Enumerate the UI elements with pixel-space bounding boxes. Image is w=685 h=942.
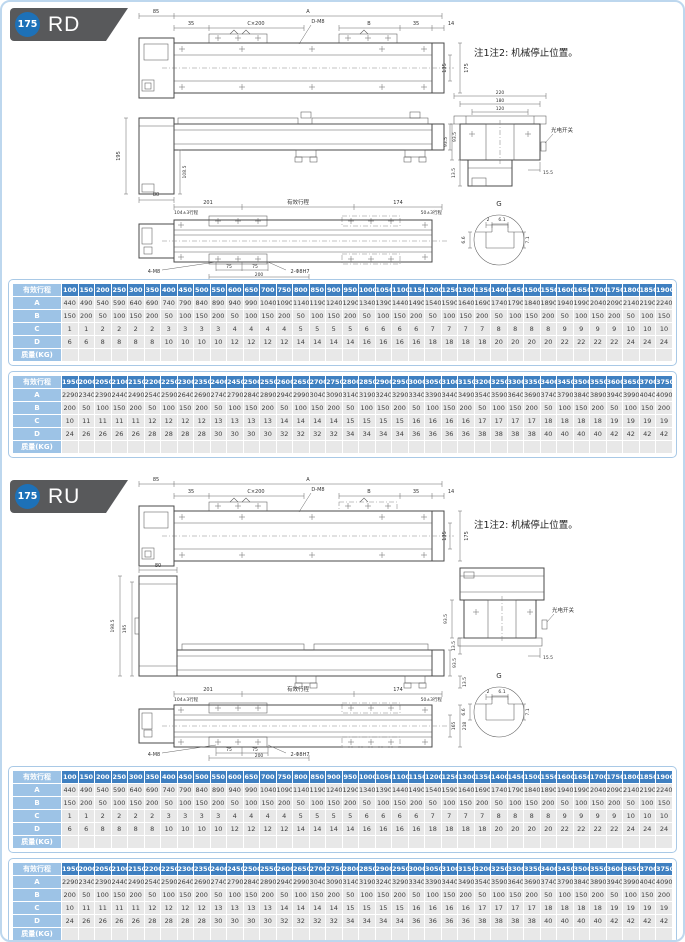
data-cell [392, 928, 409, 941]
dim-label: 85 [153, 9, 159, 15]
dim-label: 4-M8 [148, 269, 160, 275]
data-cell: 840 [194, 784, 211, 797]
data-cell: 4 [243, 810, 260, 823]
dim-label: 15.5 [543, 655, 553, 661]
stroke-value: 2300 [177, 863, 194, 876]
data-cell: 40 [557, 428, 574, 441]
dim-label: 104±3行程 [174, 696, 199, 703]
data-cell: 3 [194, 810, 211, 823]
ru-g-detail: G 2 6.1 7.1 6.6 [461, 672, 531, 737]
data-cell: 7 [474, 323, 491, 336]
data-cell: 30 [210, 428, 227, 441]
data-cell: 10 [177, 336, 194, 349]
data-cell: 24 [656, 336, 673, 349]
data-cell: 13 [260, 415, 277, 428]
data-cell: 1590 [441, 784, 458, 797]
data-cell: 17 [474, 902, 491, 915]
data-cell: 30 [260, 428, 277, 441]
data-cell: 1390 [375, 784, 392, 797]
data-cell: 16 [359, 823, 376, 836]
data-cell [507, 928, 524, 941]
data-cell: 14 [326, 823, 343, 836]
data-cell [276, 836, 293, 849]
data-cell: 18 [590, 902, 607, 915]
data-cell: 100 [557, 889, 574, 902]
data-cell [111, 349, 128, 362]
data-cell: 150 [524, 797, 541, 810]
data-cell [326, 349, 343, 362]
rd-g-detail: G 2 6.1 7.1 6.6 [461, 200, 531, 265]
data-cell [260, 441, 277, 454]
data-cell: 17 [491, 415, 508, 428]
stroke-value: 2150 [128, 376, 145, 389]
stroke-value: 2400 [210, 863, 227, 876]
data-cell [326, 928, 343, 941]
data-cell: 40 [573, 915, 590, 928]
data-cell: 8 [524, 323, 541, 336]
data-cell: 34 [375, 428, 392, 441]
data-cell [639, 928, 656, 941]
stroke-value: 2200 [144, 376, 161, 389]
data-cell: 26 [95, 428, 112, 441]
dim-label: 85 [153, 477, 159, 483]
data-cell: 1 [62, 323, 79, 336]
data-cell [161, 836, 178, 849]
data-cell: 2740 [210, 389, 227, 402]
data-cell [458, 836, 475, 849]
data-cell: 100 [309, 797, 326, 810]
stroke-value: 1700 [590, 284, 607, 297]
rd-stroke-table-2: 有效行程195020002050210021502200225023002350… [8, 371, 677, 458]
row-label: D [13, 428, 62, 441]
data-cell: 14 [326, 415, 343, 428]
data-cell: 2590 [161, 389, 178, 402]
data-cell: 100 [227, 402, 244, 415]
data-cell: 42 [639, 428, 656, 441]
data-cell: 150 [573, 402, 590, 415]
data-cell: 11 [78, 902, 95, 915]
data-cell: 50 [144, 402, 161, 415]
data-cell: 50 [210, 402, 227, 415]
data-cell [606, 349, 623, 362]
data-cell [243, 349, 260, 362]
data-cell: 15 [375, 902, 392, 915]
data-cell [441, 349, 458, 362]
data-cell: 38 [507, 428, 524, 441]
data-cell [590, 836, 607, 849]
data-cell: 10 [62, 415, 79, 428]
dim-label: 有效行程 [287, 685, 310, 693]
data-cell: 28 [144, 915, 161, 928]
data-cell: 100 [359, 889, 376, 902]
data-cell: 1140 [293, 297, 310, 310]
data-cell: 5 [309, 810, 326, 823]
data-cell: 1140 [293, 784, 310, 797]
data-cell: 200 [656, 402, 673, 415]
data-cell: 50 [144, 889, 161, 902]
data-cell: 34 [359, 915, 376, 928]
dim-label: 13.5 [451, 168, 457, 178]
stroke-value: 700 [260, 284, 277, 297]
data-cell: 2440 [111, 876, 128, 889]
stroke-value: 2100 [111, 863, 128, 876]
dim-label: 108.5 [182, 165, 188, 178]
data-cell: 200 [458, 889, 475, 902]
data-cell [309, 349, 326, 362]
data-cell: 4 [276, 810, 293, 823]
data-cell: 32 [309, 428, 326, 441]
stroke-value: 250 [111, 284, 128, 297]
data-cell: 22 [557, 823, 574, 836]
stroke-value: 3300 [507, 863, 524, 876]
data-cell: 2290 [62, 389, 79, 402]
data-cell: 9 [573, 810, 590, 823]
data-cell: 200 [474, 797, 491, 810]
data-cell: 1340 [359, 297, 376, 310]
stroke-value: 900 [326, 284, 343, 297]
data-cell: 16 [408, 415, 425, 428]
stroke-value: 2950 [392, 376, 409, 389]
data-cell: 32 [326, 915, 343, 928]
data-cell [95, 349, 112, 362]
data-cell: 3090 [326, 389, 343, 402]
data-cell: 1090 [276, 297, 293, 310]
data-cell [392, 349, 409, 362]
data-cell [540, 836, 557, 849]
data-cell [425, 836, 442, 849]
stroke-value: 900 [326, 771, 343, 784]
stroke-value: 500 [194, 284, 211, 297]
data-cell: 2940 [276, 389, 293, 402]
data-cell: 100 [441, 310, 458, 323]
data-cell: 150 [656, 797, 673, 810]
data-cell: 18 [573, 415, 590, 428]
data-cell: 640 [128, 784, 145, 797]
data-cell: 3540 [474, 876, 491, 889]
stroke-value: 1050 [375, 771, 392, 784]
row-label: C [13, 323, 62, 336]
data-cell: 1540 [425, 297, 442, 310]
dim-label: 93.5 [452, 658, 458, 668]
data-cell: 13 [227, 415, 244, 428]
data-cell [144, 928, 161, 941]
data-cell [573, 928, 590, 941]
data-cell: 100 [639, 797, 656, 810]
data-cell: 34 [342, 915, 359, 928]
data-cell [293, 928, 310, 941]
stroke-value: 1650 [573, 284, 590, 297]
data-cell: 8 [524, 810, 541, 823]
data-cell [342, 441, 359, 454]
data-cell: 34 [392, 428, 409, 441]
data-cell [78, 349, 95, 362]
data-cell: 4040 [639, 876, 656, 889]
data-cell [606, 836, 623, 849]
dim-label: B [367, 21, 371, 27]
data-cell [474, 349, 491, 362]
data-cell: 200 [78, 797, 95, 810]
stroke-value: 2450 [227, 376, 244, 389]
data-cell: 150 [260, 797, 277, 810]
data-cell: 8 [128, 336, 145, 349]
data-cell: 1990 [573, 784, 590, 797]
data-cell: 3240 [375, 876, 392, 889]
stroke-value: 2000 [78, 863, 95, 876]
data-cell: 28 [161, 915, 178, 928]
stroke-value: 1850 [639, 771, 656, 784]
data-cell: 50 [540, 402, 557, 415]
rd-end-view: 220 180 120 光电开关 15.5 93.5 13.5 [443, 90, 574, 186]
data-cell: 42 [656, 915, 673, 928]
data-cell: 150 [243, 889, 260, 902]
ru-top-view: 85 A 35 C×200 B 35 14 D-M8 135 175 [139, 477, 470, 566]
data-cell: 200 [590, 402, 607, 415]
stroke-value: 1350 [474, 284, 491, 297]
data-cell: 26 [128, 915, 145, 928]
data-cell [639, 349, 656, 362]
data-cell: 42 [639, 915, 656, 928]
data-cell: 19 [623, 415, 640, 428]
data-cell: 34 [342, 428, 359, 441]
row-label: B [13, 889, 62, 902]
data-cell: 28 [194, 915, 211, 928]
stroke-value: 2600 [276, 376, 293, 389]
data-cell: 12 [161, 415, 178, 428]
data-cell: 2890 [260, 389, 277, 402]
data-cell: 1440 [392, 297, 409, 310]
data-cell: 17 [524, 902, 541, 915]
data-cell: 1840 [524, 297, 541, 310]
data-cell [375, 836, 392, 849]
data-cell: 26 [128, 428, 145, 441]
data-cell: 3 [194, 323, 211, 336]
data-cell: 12 [243, 823, 260, 836]
data-cell [177, 836, 194, 849]
detail-label: G [496, 200, 501, 208]
data-cell: 8 [491, 323, 508, 336]
data-cell: 1440 [392, 784, 409, 797]
stroke-header-label: 有效行程 [13, 863, 62, 876]
stroke-value: 3200 [474, 376, 491, 389]
dim-label: 174 [393, 687, 403, 693]
data-cell: 150 [375, 889, 392, 902]
dim-label: 198.5 [110, 619, 116, 632]
data-cell: 3740 [540, 389, 557, 402]
data-cell: 16 [458, 415, 475, 428]
data-cell: 1940 [557, 784, 574, 797]
dim-label: 13.5 [451, 641, 457, 651]
data-cell: 20 [491, 823, 508, 836]
data-cell: 6 [359, 810, 376, 823]
stroke-value: 2750 [326, 376, 343, 389]
data-cell [540, 928, 557, 941]
stroke-value: 3200 [474, 863, 491, 876]
data-cell: 16 [441, 415, 458, 428]
data-cell [293, 349, 310, 362]
data-cell: 40 [590, 915, 607, 928]
data-cell: 24 [623, 336, 640, 349]
rd-bottom-view: 201 有效行程 174 104±3行程 50±3行程 4-M8 75 75 2 [139, 198, 447, 279]
data-cell: 200 [144, 310, 161, 323]
data-cell: 34 [392, 915, 409, 928]
dim-label: 14 [448, 489, 454, 495]
data-cell [639, 836, 656, 849]
data-cell [590, 349, 607, 362]
stroke-table: 有效行程195020002050210021502200225023002350… [12, 375, 673, 454]
data-cell: 15 [342, 902, 359, 915]
data-cell [524, 928, 541, 941]
stroke-value: 3600 [606, 863, 623, 876]
data-cell: 100 [95, 402, 112, 415]
stroke-value: 850 [309, 771, 326, 784]
stroke-value: 1950 [62, 376, 79, 389]
data-cell: 24 [639, 823, 656, 836]
data-cell: 16 [408, 336, 425, 349]
data-cell: 1640 [458, 784, 475, 797]
data-cell [144, 441, 161, 454]
data-cell [260, 928, 277, 941]
data-cell: 3290 [392, 389, 409, 402]
data-cell: 2940 [276, 876, 293, 889]
ru-stroke-table-2: 有效行程195020002050210021502200225023002350… [8, 858, 677, 942]
stroke-value: 3050 [425, 863, 442, 876]
stroke-value: 700 [260, 771, 277, 784]
data-cell: 4040 [639, 389, 656, 402]
data-cell: 36 [425, 428, 442, 441]
dim-label: 75 [226, 264, 232, 270]
data-cell: 200 [210, 310, 227, 323]
data-cell: 18 [458, 336, 475, 349]
stroke-value: 2350 [194, 376, 211, 389]
data-cell: 38 [491, 915, 508, 928]
data-cell: 4 [260, 323, 277, 336]
stroke-value: 550 [210, 284, 227, 297]
data-cell: 50 [78, 889, 95, 902]
data-cell: 7 [441, 323, 458, 336]
data-cell: 50 [557, 797, 574, 810]
data-cell: 200 [78, 310, 95, 323]
data-cell: 16 [392, 823, 409, 836]
data-cell: 1190 [309, 297, 326, 310]
dim-label: 15.5 [543, 170, 553, 176]
data-cell: 38 [524, 428, 541, 441]
data-cell: 200 [276, 797, 293, 810]
stroke-value: 2500 [243, 863, 260, 876]
data-cell: 36 [408, 428, 425, 441]
stroke-header-label: 有效行程 [13, 376, 62, 389]
dim-label: 6.6 [461, 708, 467, 715]
data-cell: 100 [507, 310, 524, 323]
data-cell: 22 [573, 336, 590, 349]
dim-label: 195 [122, 625, 128, 634]
data-cell: 2840 [243, 389, 260, 402]
data-cell [128, 836, 145, 849]
row-label: D [13, 915, 62, 928]
data-cell: 150 [458, 797, 475, 810]
data-cell: 3840 [573, 876, 590, 889]
data-cell [227, 836, 244, 849]
data-cell: 10 [639, 323, 656, 336]
stroke-value: 650 [243, 771, 260, 784]
data-cell [392, 441, 409, 454]
data-cell: 18 [441, 336, 458, 349]
stroke-value: 150 [78, 284, 95, 297]
data-cell: 1390 [375, 297, 392, 310]
data-cell: 20 [507, 823, 524, 836]
row-label: B [13, 797, 62, 810]
data-cell: 13 [260, 902, 277, 915]
data-cell [491, 441, 508, 454]
data-cell: 32 [276, 915, 293, 928]
data-cell [375, 349, 392, 362]
stroke-value: 3450 [557, 863, 574, 876]
stroke-value: 2250 [161, 376, 178, 389]
stroke-value: 2350 [194, 863, 211, 876]
data-cell: 6 [375, 323, 392, 336]
data-cell: 50 [474, 402, 491, 415]
data-cell: 11 [111, 902, 128, 915]
photo-switch-label: 光电开关 [552, 606, 575, 614]
stroke-value: 3550 [590, 863, 607, 876]
data-cell [161, 928, 178, 941]
data-cell: 3590 [491, 876, 508, 889]
dim-label: 135 [442, 531, 448, 541]
data-cell: 7 [441, 810, 458, 823]
data-cell: 150 [639, 402, 656, 415]
data-cell: 22 [606, 823, 623, 836]
ru-technical-drawing: 85 A 35 C×200 B 35 14 D-M8 135 175 [2, 472, 685, 764]
data-cell: 50 [408, 402, 425, 415]
data-cell: 6 [359, 323, 376, 336]
data-cell: 50 [359, 310, 376, 323]
stroke-value: 100 [62, 284, 79, 297]
data-cell: 10 [194, 823, 211, 836]
data-cell [573, 836, 590, 849]
data-cell [128, 441, 145, 454]
dim-label: 201 [203, 687, 213, 693]
data-cell: 100 [111, 310, 128, 323]
data-cell: 150 [507, 402, 524, 415]
data-cell: 3140 [342, 876, 359, 889]
data-cell: 50 [491, 310, 508, 323]
datasheet-page: 175 RD 85 A 35 C×200 B 35 14 D-M8 [0, 0, 685, 942]
data-cell: 17 [507, 902, 524, 915]
data-cell: 3 [210, 810, 227, 823]
data-cell: 18 [557, 902, 574, 915]
stroke-value: 950 [342, 771, 359, 784]
data-cell: 10 [161, 336, 178, 349]
data-cell [474, 836, 491, 849]
data-cell: 50 [606, 402, 623, 415]
stroke-value: 3100 [441, 376, 458, 389]
data-cell: 8 [144, 336, 161, 349]
data-cell [408, 441, 425, 454]
data-cell: 150 [573, 889, 590, 902]
data-cell [309, 836, 326, 849]
dim-label: 2 [487, 217, 490, 223]
data-cell [590, 928, 607, 941]
data-cell: 150 [309, 402, 326, 415]
data-cell: 50 [557, 310, 574, 323]
data-cell [623, 441, 640, 454]
data-cell: 10 [194, 336, 211, 349]
data-cell: 24 [656, 823, 673, 836]
data-cell: 200 [194, 402, 211, 415]
data-cell: 10 [210, 336, 227, 349]
data-cell [441, 441, 458, 454]
stroke-value: 3000 [408, 376, 425, 389]
data-cell [623, 836, 640, 849]
